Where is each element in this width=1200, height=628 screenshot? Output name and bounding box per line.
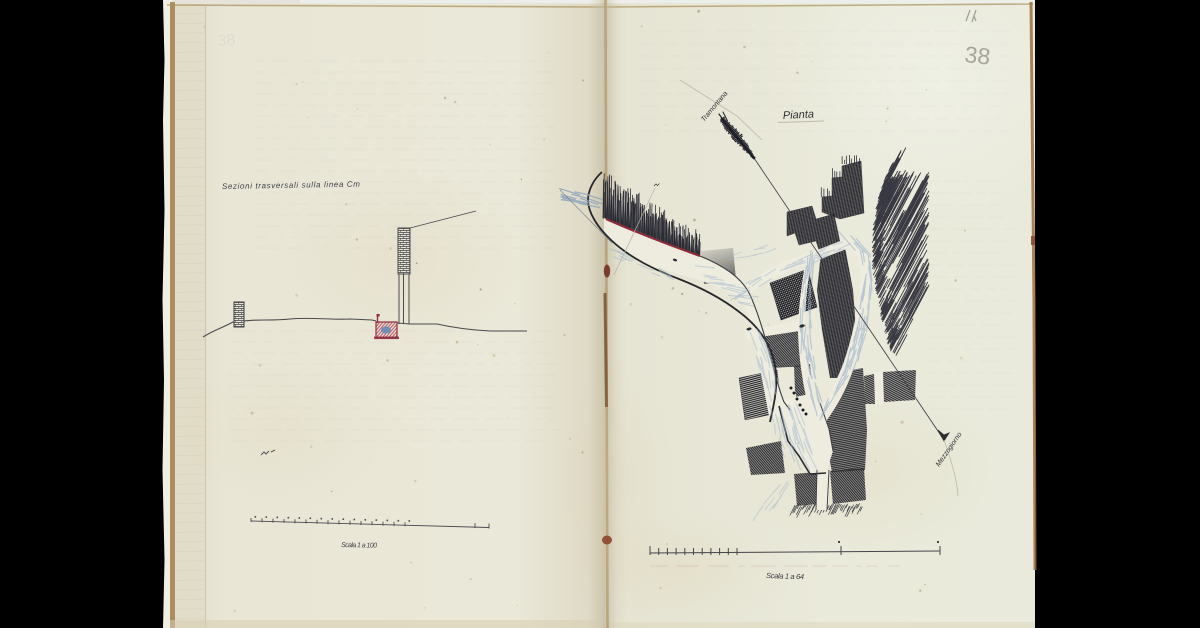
svg-text:38: 38 <box>217 32 236 50</box>
svg-text:Scala 1 a 100: Scala 1 a 100 <box>341 542 377 550</box>
svg-text:Pianta: Pianta <box>783 108 815 122</box>
svg-text:Scala 1 a 64: Scala 1 a 64 <box>766 571 804 581</box>
svg-text:38: 38 <box>963 41 991 70</box>
